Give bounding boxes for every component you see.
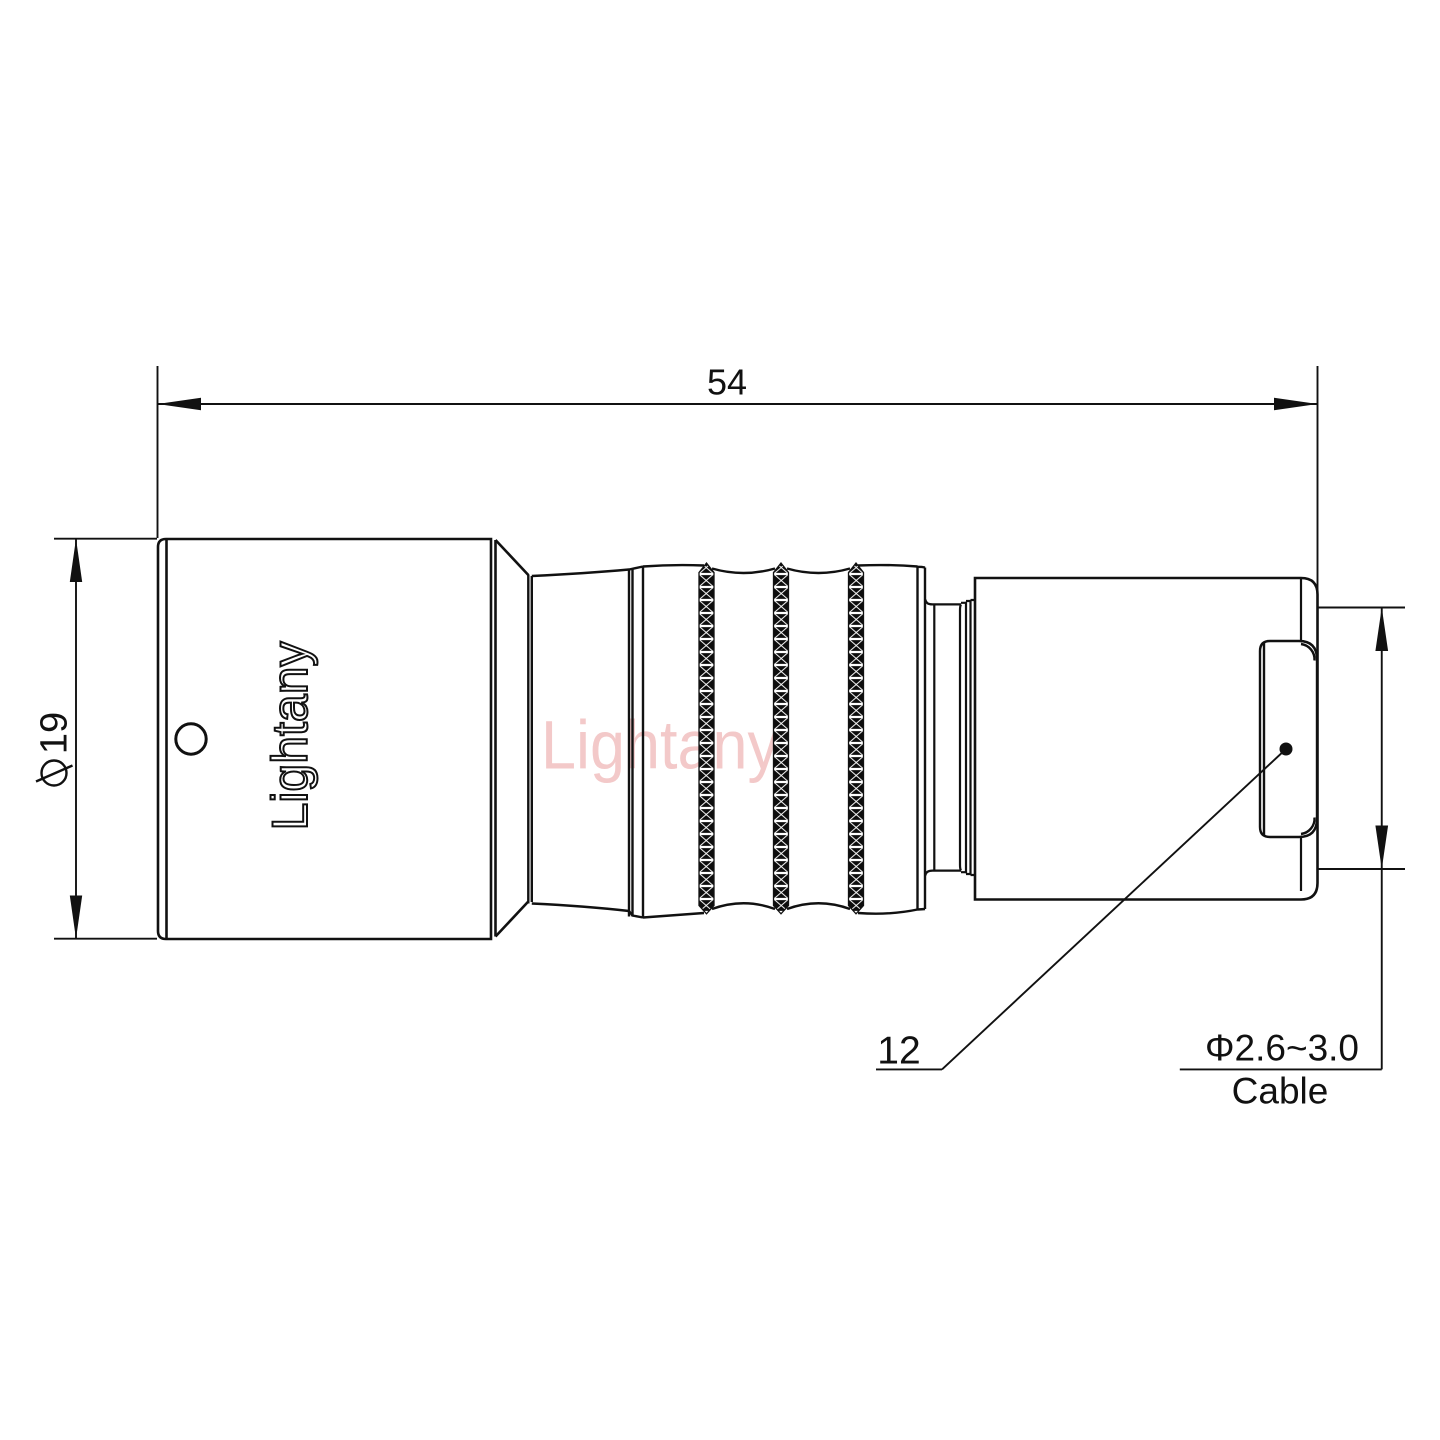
- svg-text:Lightany: Lightany: [262, 641, 318, 830]
- svg-text:Cable: Cable: [1232, 1071, 1329, 1112]
- svg-text:12: 12: [877, 1030, 920, 1073]
- svg-text:54: 54: [707, 362, 747, 403]
- svg-text:19: 19: [34, 712, 76, 754]
- svg-text:Φ2.6~3.0: Φ2.6~3.0: [1205, 1028, 1359, 1069]
- svg-text:Lightany: Lightany: [541, 707, 779, 784]
